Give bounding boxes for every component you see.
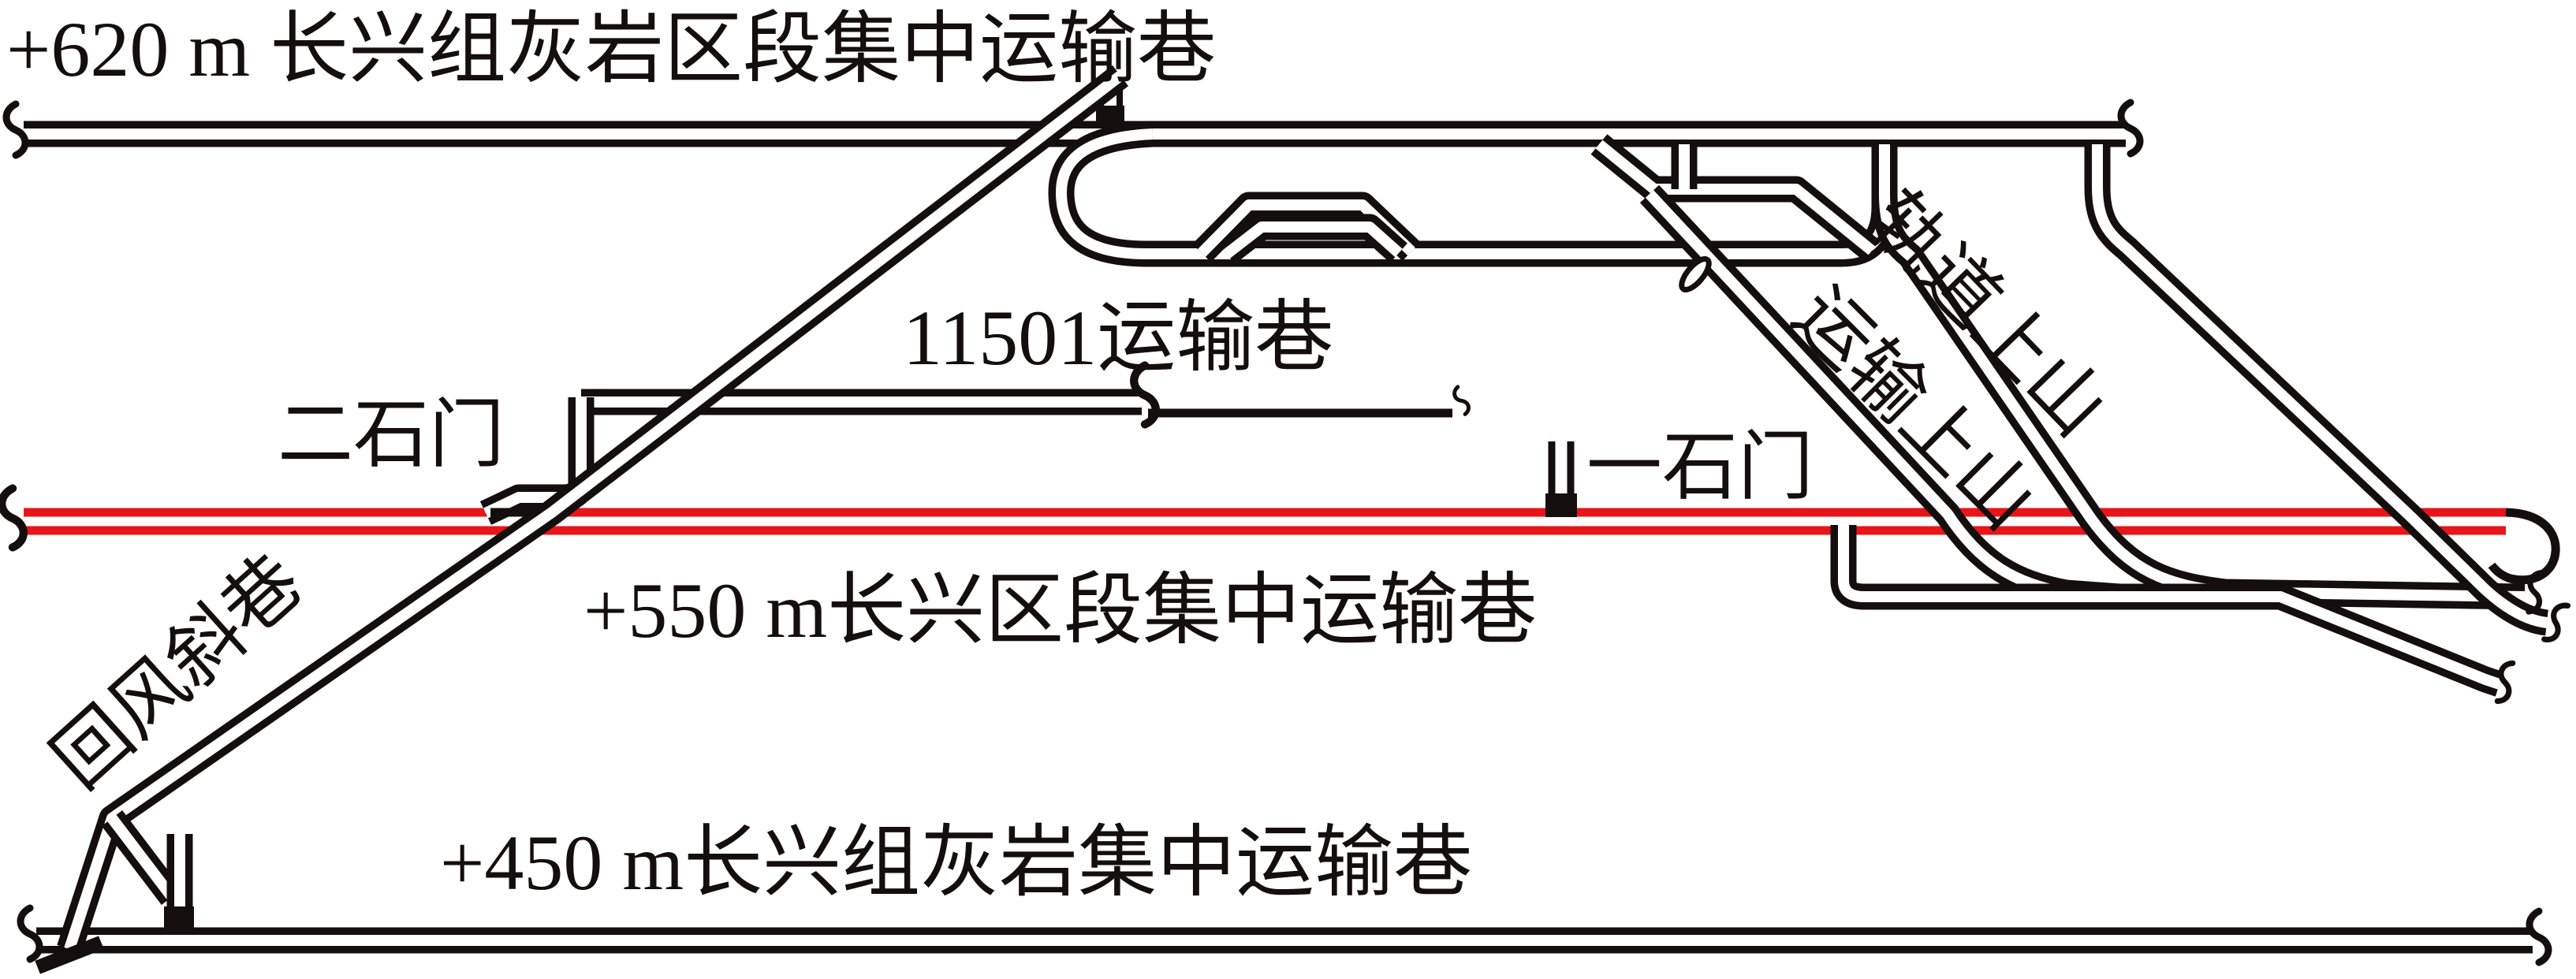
track-rise-line-core — [2097, 144, 2547, 623]
yard-siding-upper — [1599, 144, 1872, 251]
mine-layout-diagram: +620 m 长兴组灰岩区段集中运输巷 11501运输巷 二石门 一石门 +55… — [0, 0, 2576, 979]
label-crosscut-2: 二石门 — [278, 393, 505, 477]
label-level-550: +550 m长兴区段集中运输巷 — [583, 567, 1537, 654]
stopper-550-base — [1545, 493, 1577, 517]
break-symbol-620-left — [6, 104, 25, 155]
incline-branch-core — [112, 818, 172, 897]
stopper-450-base — [164, 906, 194, 930]
stopper-620-base — [1096, 106, 1124, 121]
break-symbol-450-right — [2529, 911, 2548, 962]
break-symbol-550-left — [2, 489, 24, 548]
level-550-turnaround-curl — [2492, 512, 2555, 580]
label-roadway-11501: 11501运输巷 — [903, 294, 1333, 382]
break-symbol-11501-tail — [1453, 385, 1471, 415]
diagram-canvas: +620 m 长兴组灰岩区段集中运输巷 11501运输巷 二石门 一石门 +55… — [0, 0, 2576, 979]
label-level-450: +450 m长兴组灰岩集中运输巷 — [440, 819, 1472, 906]
label-level-620: +620 m 长兴组灰岩区段集中运输巷 — [6, 6, 1216, 93]
label-crosscut-1: 一石门 — [1586, 425, 1814, 509]
track-rise-line — [2097, 144, 2547, 623]
